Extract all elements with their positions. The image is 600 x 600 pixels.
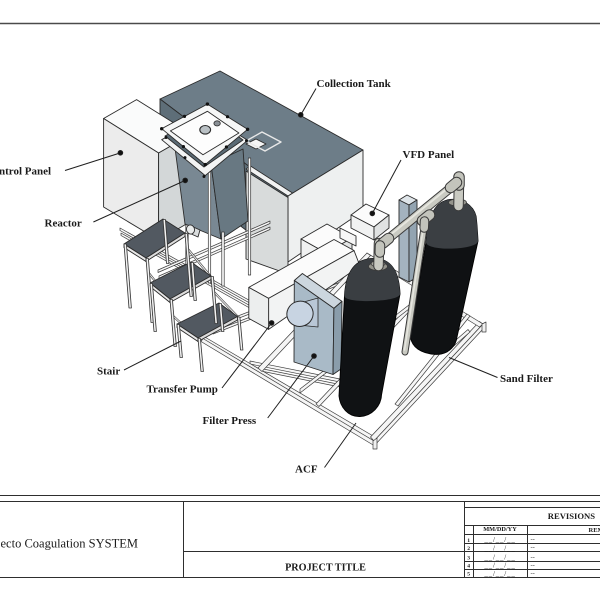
svg-text:5: 5 [467,572,470,578]
svg-text:--: -- [531,545,535,552]
svg-text:ACF: ACF [295,464,318,476]
svg-text:--: -- [531,562,535,569]
svg-text:__/__/__: __/__/__ [483,562,515,570]
svg-text:__/__/__: __/__/__ [483,544,515,552]
svg-text:VFD Panel: VFD Panel [403,149,455,161]
svg-text:--: -- [531,570,535,577]
svg-text:3: 3 [467,555,470,561]
svg-text:2: 2 [467,546,470,552]
svg-text:Collection Tank: Collection Tank [317,78,392,90]
svg-text:Reactor: Reactor [45,218,82,230]
svg-text:ecto Coagulation SYSTEM: ecto Coagulation SYSTEM [1,537,139,551]
svg-text:1: 1 [467,538,470,544]
svg-text:Transfer Pump: Transfer Pump [147,384,218,396]
svg-text:Filter Press: Filter Press [203,415,257,427]
svg-text:--: -- [531,554,535,561]
svg-text:--: -- [531,536,535,543]
svg-text:Stair: Stair [97,366,120,378]
svg-text:REVISIONS: REVISIONS [548,511,596,521]
svg-text:ntrol Panel: ntrol Panel [0,166,51,178]
svg-text:REMARKS: REMARKS [589,527,600,534]
svg-text:Sand Filter: Sand Filter [500,373,553,385]
svg-text:4: 4 [467,563,470,569]
svg-text:__/__/__: __/__/__ [483,536,515,544]
svg-text:PROJECT TITLE: PROJECT TITLE [285,563,366,574]
svg-text:__/__/__: __/__/__ [483,570,515,578]
svg-text:MM/DD/YY: MM/DD/YY [483,526,517,533]
svg-text:__/__/__: __/__/__ [483,554,515,562]
